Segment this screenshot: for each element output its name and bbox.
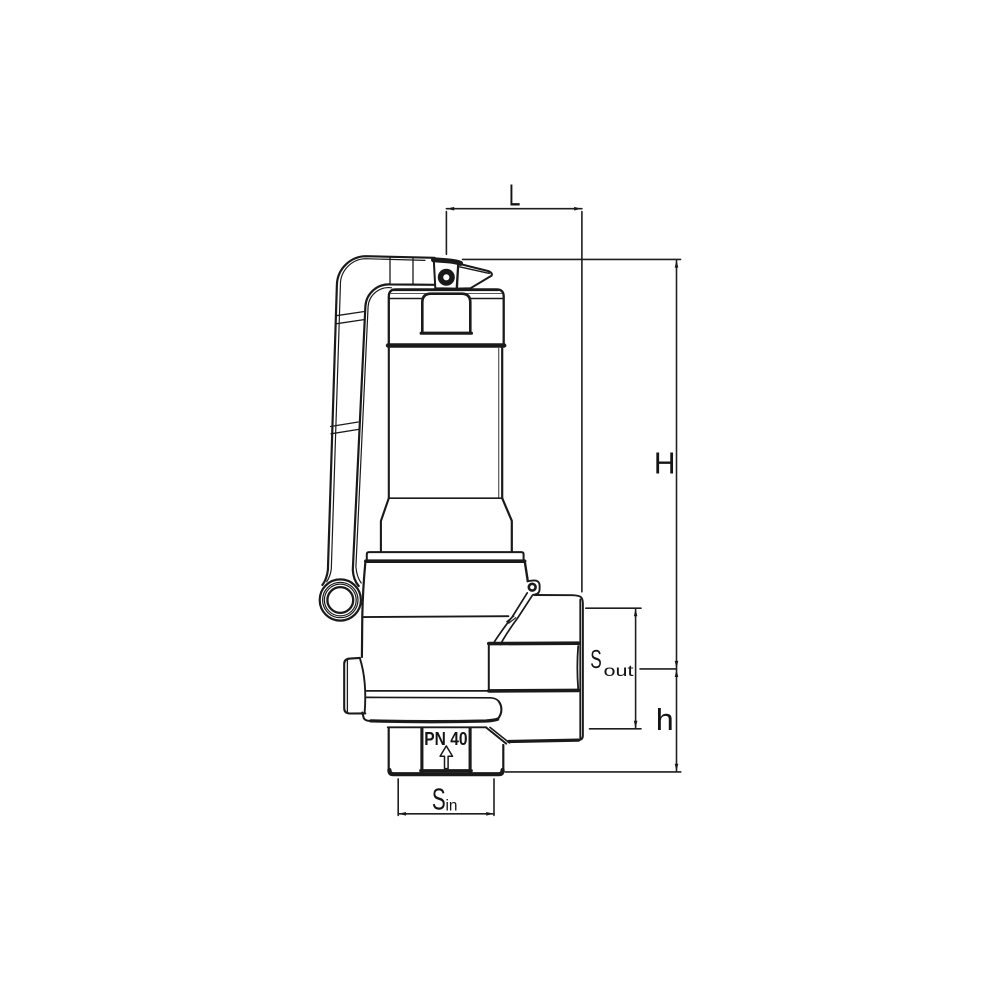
svg-text:PN 40: PN 40 bbox=[424, 728, 467, 749]
svg-text:in: in bbox=[446, 797, 458, 814]
svg-text:out: out bbox=[604, 663, 635, 680]
svg-text:S: S bbox=[432, 782, 446, 817]
svg-text:h: h bbox=[656, 702, 674, 737]
svg-text:S: S bbox=[590, 644, 602, 674]
svg-text:H: H bbox=[654, 446, 676, 481]
svg-text:L: L bbox=[509, 179, 521, 213]
